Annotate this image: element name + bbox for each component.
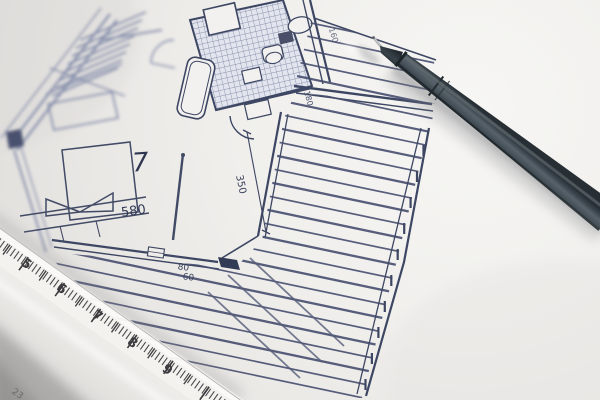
window-symbol	[147, 247, 164, 258]
pen-tip-point	[372, 36, 375, 39]
photo-canvas: 7 580 350 160 180 80 60 5 6 7 8 9 23	[0, 0, 600, 400]
room-number-label: 7	[131, 147, 150, 178]
blueprint-photo: 7 580 350 160 180 80 60 5 6 7 8 9 23	[0, 0, 600, 400]
dimension-60-label: 60	[182, 272, 195, 284]
window-marker	[6, 129, 24, 149]
